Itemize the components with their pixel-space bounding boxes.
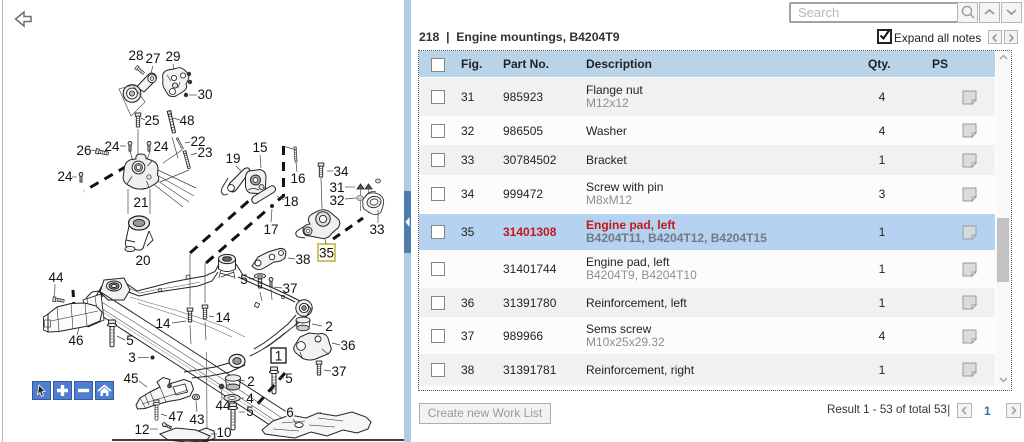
svg-text:18: 18 <box>283 194 298 209</box>
svg-text:17: 17 <box>263 222 278 237</box>
svg-text:44: 44 <box>215 398 231 413</box>
svg-text:14: 14 <box>215 310 231 325</box>
svg-text:20: 20 <box>135 253 150 268</box>
svg-text:47: 47 <box>168 409 183 424</box>
svg-text:48: 48 <box>179 113 194 128</box>
svg-text:25: 25 <box>144 113 159 128</box>
svg-text:5: 5 <box>246 404 254 419</box>
svg-text:5: 5 <box>126 333 134 348</box>
svg-text:46: 46 <box>68 333 83 348</box>
svg-text:5: 5 <box>285 371 293 386</box>
svg-text:19: 19 <box>225 151 240 166</box>
svg-text:6: 6 <box>286 405 294 420</box>
svg-text:29: 29 <box>165 49 180 64</box>
svg-text:36: 36 <box>340 338 355 353</box>
svg-text:24: 24 <box>153 139 169 154</box>
svg-text:12: 12 <box>134 422 149 437</box>
svg-text:26: 26 <box>76 143 91 158</box>
svg-text:37: 37 <box>331 364 346 379</box>
svg-text:2: 2 <box>325 319 333 334</box>
svg-text:32: 32 <box>329 193 344 208</box>
svg-text:43: 43 <box>189 412 204 427</box>
svg-text:16: 16 <box>290 171 305 186</box>
svg-text:45: 45 <box>123 371 138 386</box>
svg-text:27: 27 <box>145 51 160 66</box>
svg-text:15: 15 <box>252 140 267 155</box>
svg-text:21: 21 <box>133 195 148 210</box>
svg-text:10: 10 <box>216 425 231 440</box>
svg-text:38: 38 <box>295 252 310 267</box>
svg-text:28: 28 <box>128 48 143 63</box>
svg-text:33: 33 <box>369 222 384 237</box>
svg-text:23: 23 <box>197 145 212 160</box>
svg-text:1: 1 <box>275 349 283 364</box>
svg-text:3: 3 <box>128 350 136 365</box>
svg-text:34: 34 <box>333 164 349 179</box>
svg-text:35: 35 <box>319 246 334 261</box>
svg-text:44: 44 <box>48 270 64 285</box>
svg-text:30: 30 <box>197 87 212 102</box>
svg-text:2: 2 <box>247 374 255 389</box>
svg-text:14: 14 <box>155 316 171 331</box>
svg-text:24: 24 <box>57 169 73 184</box>
